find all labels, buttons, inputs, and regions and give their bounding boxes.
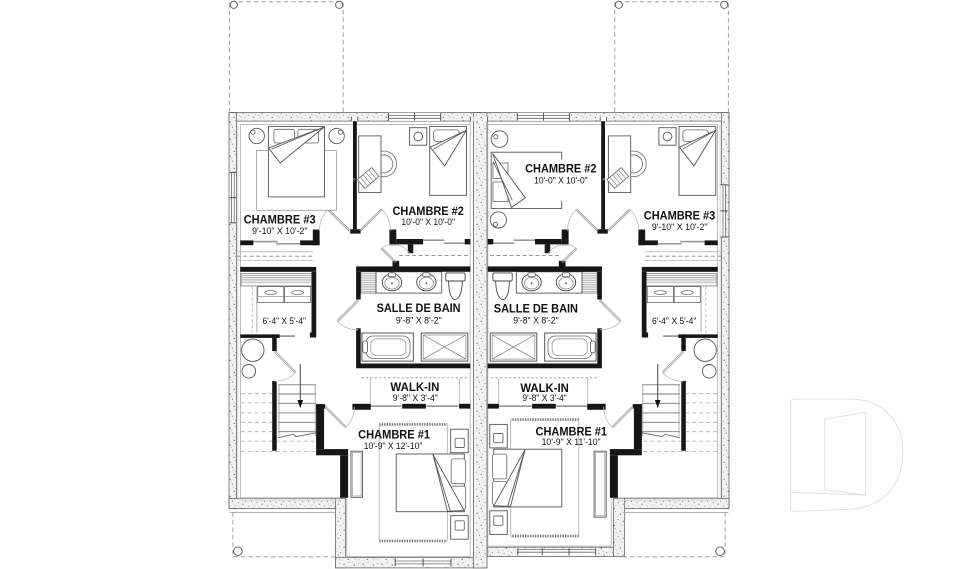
svg-text:10'-9" X 11'-10": 10'-9" X 11'-10" xyxy=(542,437,601,448)
svg-text:9'-8" X 3'-4": 9'-8" X 3'-4" xyxy=(393,393,438,404)
svg-text:10'-0" X 10'-0": 10'-0" X 10'-0" xyxy=(534,176,588,187)
svg-text:9'-8" X 8'-2": 9'-8" X 8'-2" xyxy=(396,316,442,327)
svg-text:SALLE DE BAIN: SALLE DE BAIN xyxy=(494,302,578,316)
svg-text:CHAMBRE #2: CHAMBRE #2 xyxy=(393,204,465,218)
svg-text:9'-10" X 10'-2": 9'-10" X 10'-2" xyxy=(652,222,708,233)
svg-text:10'-0" X 10'-0": 10'-0" X 10'-0" xyxy=(401,217,455,228)
svg-text:SALLE DE BAIN: SALLE DE BAIN xyxy=(377,301,461,315)
svg-text:10'-9" X 12'-10": 10'-9" X 12'-10" xyxy=(364,441,423,452)
svg-text:6'-4" X 5'-4": 6'-4" X 5'-4" xyxy=(262,316,306,327)
svg-text:CHAMBRE #3: CHAMBRE #3 xyxy=(244,213,316,227)
svg-text:9'-10" X 10'-2": 9'-10" X 10'-2" xyxy=(252,226,307,237)
svg-text:CHAMBRE #1: CHAMBRE #1 xyxy=(358,428,430,442)
svg-text:6'-4" X 5'-4": 6'-4" X 5'-4" xyxy=(652,316,697,327)
svg-text:9'-8" X 8'-2": 9'-8" X 8'-2" xyxy=(513,316,559,327)
svg-text:WALK-IN: WALK-IN xyxy=(390,380,439,394)
svg-text:CHAMBRE #3: CHAMBRE #3 xyxy=(644,208,716,222)
svg-text:CHAMBRE #2: CHAMBRE #2 xyxy=(525,161,597,175)
svg-text:9'-8" X 3'-4": 9'-8" X 3'-4" xyxy=(522,393,567,404)
